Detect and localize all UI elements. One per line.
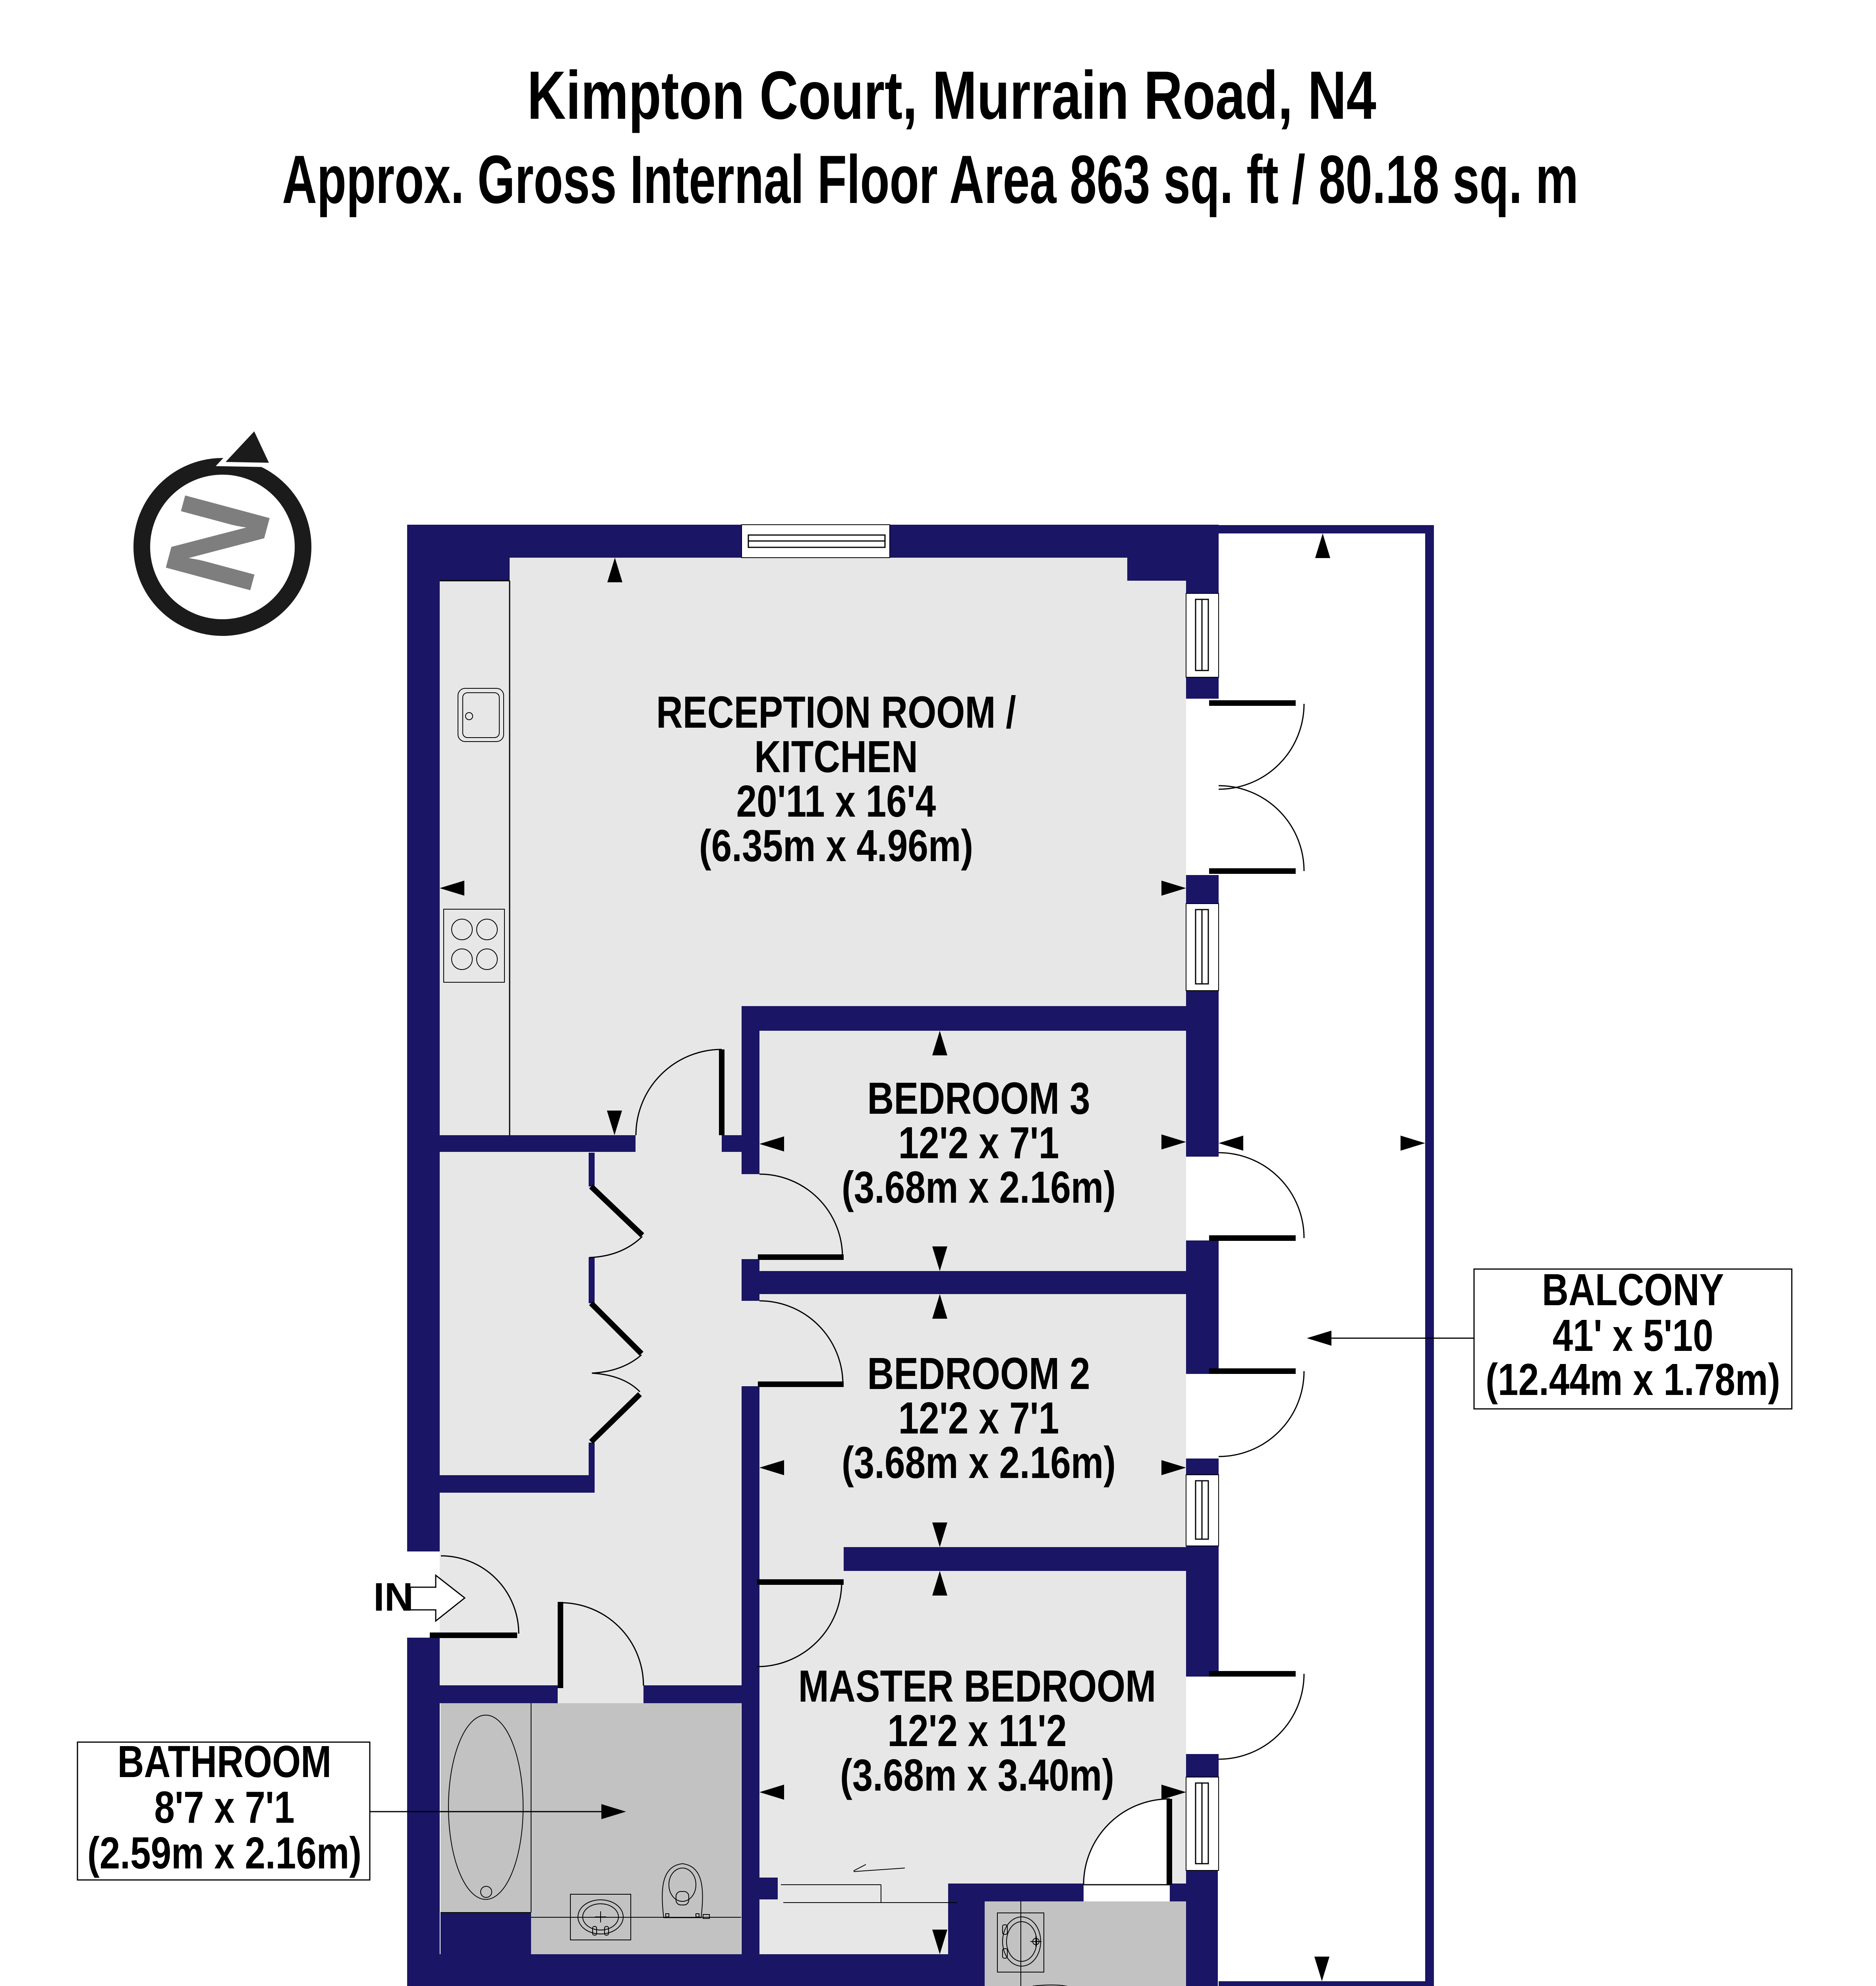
svg-text:(6.35m x 4.96m): (6.35m x 4.96m)	[699, 820, 973, 871]
svg-text:12'2 x 7'1: 12'2 x 7'1	[898, 1393, 1059, 1443]
svg-text:BATHROOM: BATHROOM	[118, 1736, 332, 1787]
svg-text:(3.68m x 2.16m): (3.68m x 2.16m)	[842, 1437, 1116, 1488]
svg-text:12'2 x 7'1: 12'2 x 7'1	[898, 1117, 1059, 1168]
svg-text:Kimpton Court, Murrain Road, N: Kimpton Court, Murrain Road, N4	[527, 57, 1376, 133]
svg-text:(3.68m x 2.16m): (3.68m x 2.16m)	[842, 1162, 1116, 1212]
svg-text:IN: IN	[373, 1575, 413, 1619]
svg-text:8'7 x 7'1: 8'7 x 7'1	[154, 1782, 294, 1832]
svg-text:BEDROOM 3: BEDROOM 3	[867, 1073, 1090, 1123]
svg-text:(3.68m x 3.40m): (3.68m x 3.40m)	[840, 1750, 1114, 1800]
svg-text:BEDROOM 2: BEDROOM 2	[867, 1348, 1090, 1399]
svg-text:12'2 x 11'2: 12'2 x 11'2	[887, 1705, 1066, 1756]
svg-text:Approx. Gross Internal Floor A: Approx. Gross Internal Floor Area 863 sq…	[282, 141, 1578, 218]
svg-text:20'11 x 16'4: 20'11 x 16'4	[736, 776, 936, 826]
svg-text:(12.44m x 1.78m): (12.44m x 1.78m)	[1486, 1354, 1780, 1404]
svg-text:(2.59m x 2.16m): (2.59m x 2.16m)	[87, 1828, 361, 1878]
svg-text:41' x 5'10: 41' x 5'10	[1553, 1310, 1714, 1360]
svg-text:MASTER BEDROOM: MASTER BEDROOM	[798, 1661, 1156, 1711]
svg-text:BALCONY: BALCONY	[1542, 1264, 1724, 1315]
svg-text:RECEPTION ROOM /: RECEPTION ROOM /	[656, 687, 1016, 737]
svg-text:KITCHEN: KITCHEN	[754, 731, 918, 782]
